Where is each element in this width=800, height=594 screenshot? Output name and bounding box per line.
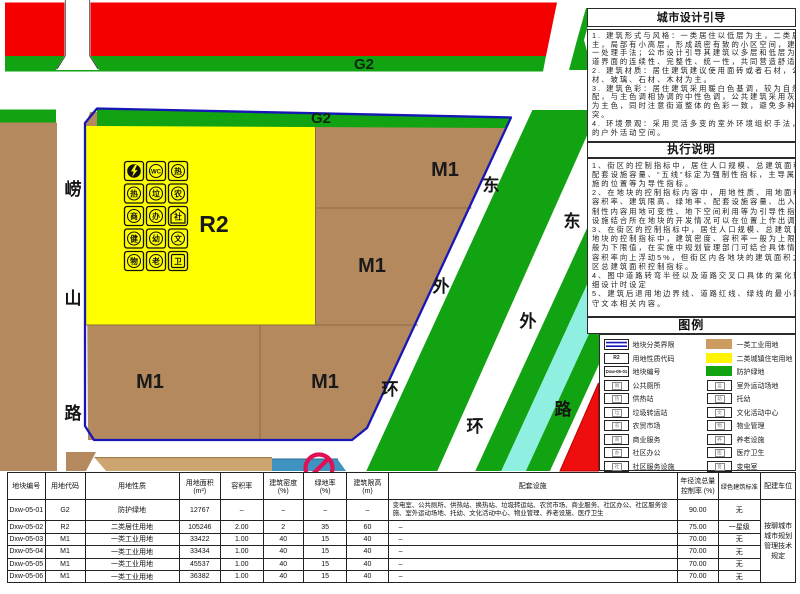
svg-text:农: 农 bbox=[173, 189, 182, 199]
svg-text:WC: WC bbox=[151, 170, 162, 176]
svg-text:M1: M1 bbox=[431, 159, 459, 181]
svg-text:文: 文 bbox=[174, 234, 182, 244]
svg-text:R2: R2 bbox=[199, 211, 228, 237]
svg-text:东: 东 bbox=[483, 175, 500, 195]
svg-text:M1: M1 bbox=[358, 255, 386, 277]
svg-text:幼: 幼 bbox=[152, 234, 160, 244]
svg-text:G2: G2 bbox=[354, 56, 374, 73]
svg-text:健: 健 bbox=[130, 234, 138, 244]
svg-text:M1: M1 bbox=[311, 371, 339, 393]
svg-text:物: 物 bbox=[130, 256, 138, 266]
svg-text:环: 环 bbox=[382, 380, 399, 399]
svg-text:垃: 垃 bbox=[152, 189, 160, 199]
svg-text:热: 热 bbox=[130, 189, 138, 199]
svg-text:社: 社 bbox=[173, 212, 182, 222]
svg-text:环: 环 bbox=[467, 417, 484, 436]
svg-text:外: 外 bbox=[433, 276, 450, 296]
svg-text:办: 办 bbox=[152, 211, 160, 221]
svg-text:路: 路 bbox=[555, 399, 573, 419]
svg-text:山: 山 bbox=[65, 289, 82, 308]
svg-text:外: 外 bbox=[520, 311, 537, 331]
svg-text:M1: M1 bbox=[136, 371, 164, 393]
svg-text:东: 东 bbox=[564, 211, 581, 231]
svg-text:路: 路 bbox=[65, 403, 83, 423]
svg-text:热: 热 bbox=[174, 166, 182, 176]
svg-text:G2: G2 bbox=[311, 110, 331, 127]
svg-text:商: 商 bbox=[130, 211, 138, 221]
svg-text:老: 老 bbox=[151, 256, 160, 266]
svg-text:崂: 崂 bbox=[65, 179, 82, 199]
svg-text:卫: 卫 bbox=[174, 257, 182, 266]
